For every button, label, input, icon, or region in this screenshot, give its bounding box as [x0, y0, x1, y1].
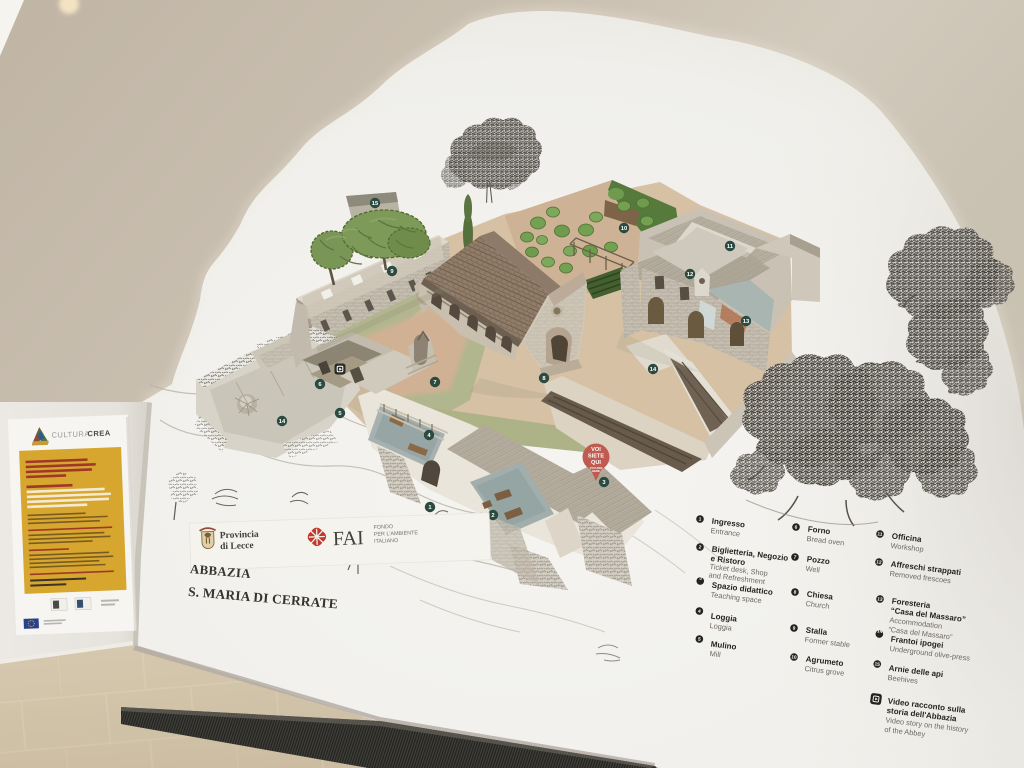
svg-text:FONDO: FONDO — [373, 524, 393, 531]
svg-text:14: 14 — [877, 628, 883, 635]
svg-text:10: 10 — [791, 654, 797, 661]
svg-text:15: 15 — [874, 661, 880, 668]
svg-text:2: 2 — [491, 513, 494, 519]
svg-text:Mill: Mill — [709, 649, 721, 659]
svg-text:12: 12 — [687, 272, 693, 278]
svg-text:14: 14 — [650, 367, 657, 373]
svg-text:FAI: FAI — [333, 527, 364, 550]
svg-text:Well: Well — [805, 564, 821, 575]
svg-text:ITALIANO: ITALIANO — [374, 538, 398, 545]
svg-text:7: 7 — [433, 380, 436, 386]
svg-text:HERE: HERE — [592, 469, 600, 473]
svg-text:SIETE: SIETE — [588, 454, 604, 460]
svg-text:CULTURA: CULTURA — [51, 429, 90, 439]
svg-text:13: 13 — [743, 319, 750, 325]
svg-text:12: 12 — [876, 559, 882, 566]
svg-text:CREA: CREA — [87, 428, 111, 438]
svg-text:Provincia: Provincia — [220, 530, 259, 541]
svg-text:13: 13 — [877, 596, 883, 603]
svg-text:10: 10 — [621, 226, 627, 232]
svg-text:14: 14 — [279, 419, 286, 425]
svg-text:11: 11 — [727, 244, 734, 250]
svg-text:di Lecce: di Lecce — [220, 541, 254, 552]
svg-text:15: 15 — [372, 201, 379, 207]
svg-text:VOI: VOI — [591, 447, 601, 453]
